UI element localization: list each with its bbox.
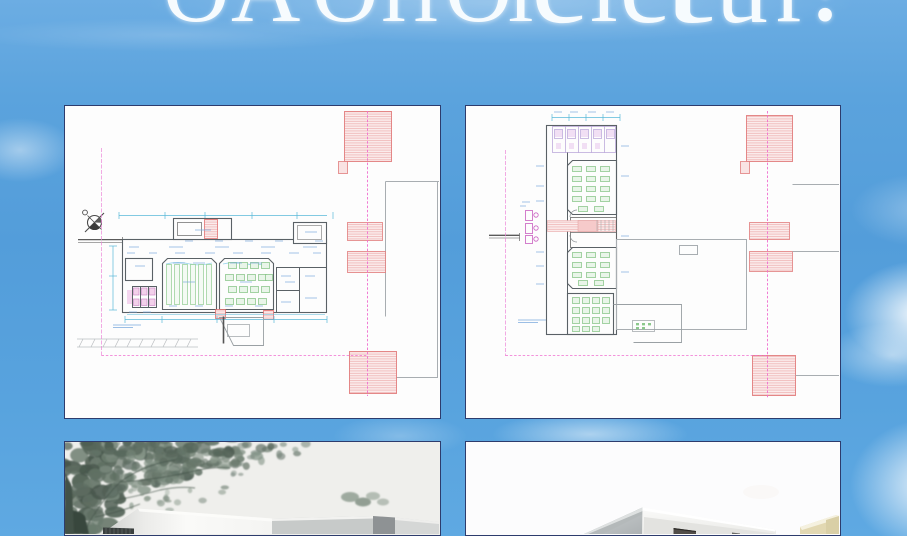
svg-text:i: i xyxy=(590,0,618,40)
svg-text:u: u xyxy=(716,0,768,40)
svg-text:t: t xyxy=(663,0,713,40)
svg-text:c: c xyxy=(620,0,668,40)
svg-text:r: r xyxy=(776,0,809,40)
svg-text:A: A xyxy=(231,0,300,40)
svg-text:O: O xyxy=(445,0,512,40)
svg-text:l: l xyxy=(508,0,534,40)
svg-text:H: H xyxy=(381,0,439,39)
svg-text:!: ! xyxy=(806,0,844,40)
svg-text:e: e xyxy=(531,0,589,40)
svg-text:O: O xyxy=(312,0,378,40)
svg-text:O: O xyxy=(163,0,229,40)
